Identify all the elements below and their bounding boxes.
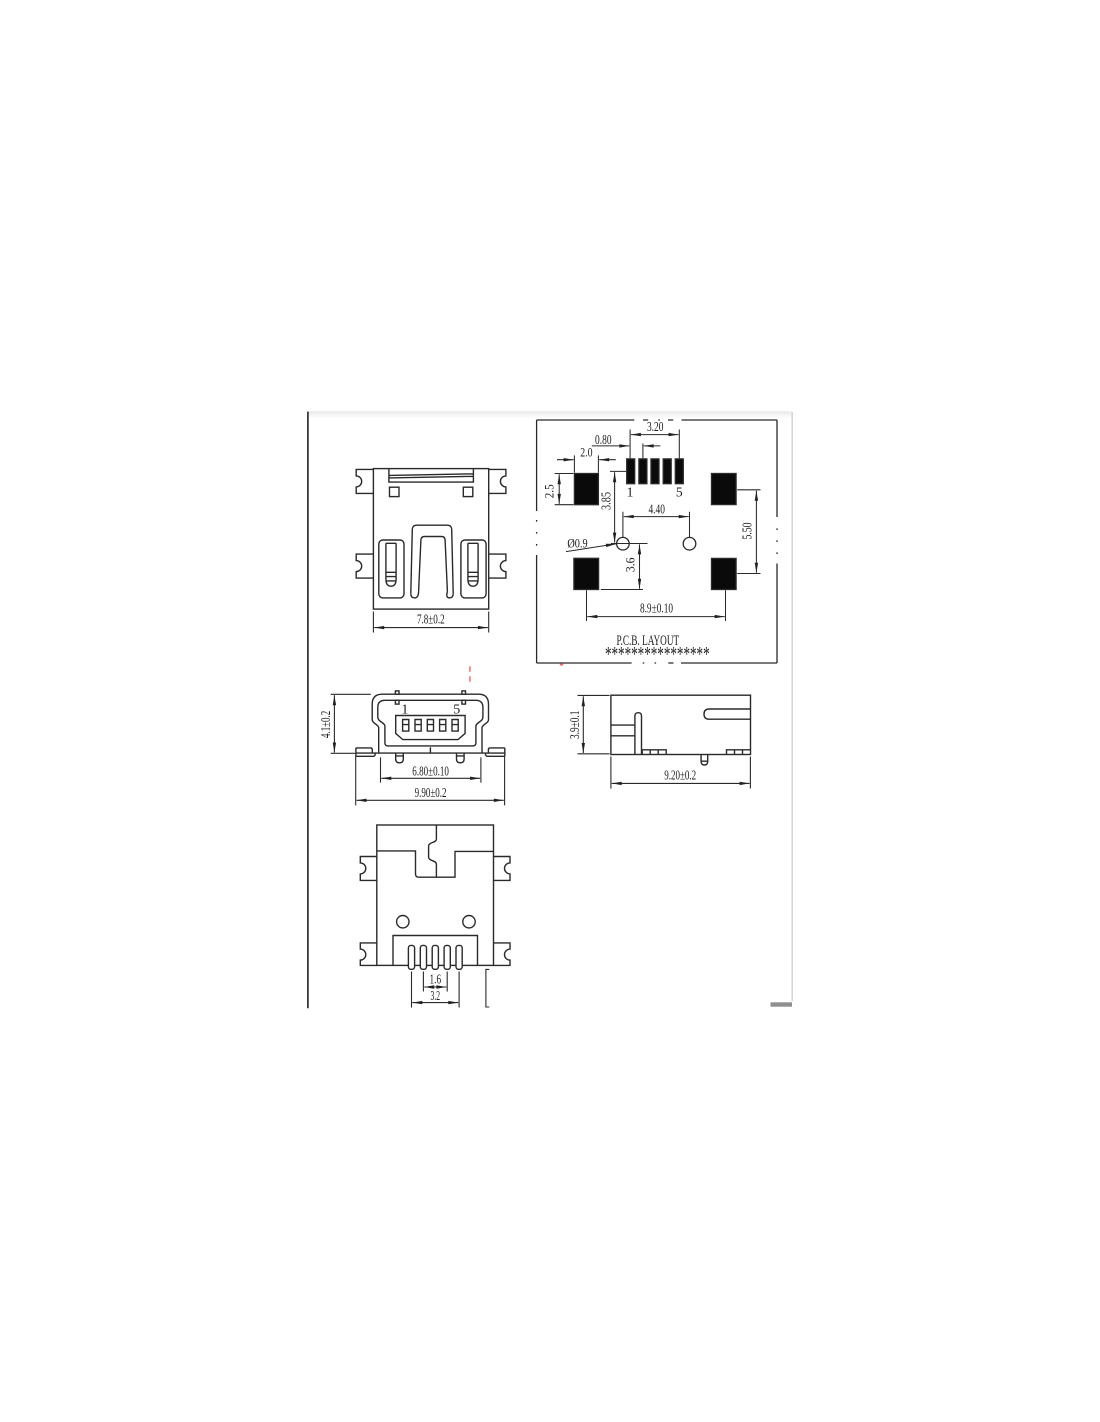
svg-text:****************: **************** [605, 642, 710, 666]
svg-text:5: 5 [676, 485, 683, 500]
svg-text:3.9±0.1: 3.9±0.1 [568, 711, 583, 740]
svg-text:7.8±0.2: 7.8±0.2 [417, 612, 445, 627]
svg-text:5.50: 5.50 [740, 522, 755, 539]
svg-text:4.40: 4.40 [648, 501, 665, 516]
svg-text:2.0: 2.0 [580, 445, 592, 460]
svg-text:9.20±0.2: 9.20±0.2 [664, 769, 696, 784]
svg-text:5: 5 [453, 702, 460, 717]
svg-text:1: 1 [401, 702, 408, 717]
svg-text:1: 1 [627, 485, 634, 500]
svg-text:1.6: 1.6 [430, 971, 442, 986]
svg-text:9.90±0.2: 9.90±0.2 [415, 786, 447, 801]
svg-text:3.6: 3.6 [622, 557, 637, 572]
svg-text:8.9±0.10: 8.9±0.10 [640, 602, 673, 617]
svg-text:Ø0.9: Ø0.9 [567, 536, 587, 551]
svg-text:2.5: 2.5 [542, 484, 557, 498]
svg-text:3.20: 3.20 [647, 419, 664, 434]
svg-text:3.85: 3.85 [598, 492, 613, 510]
svg-text:0.80: 0.80 [595, 432, 612, 447]
svg-text:3.2: 3.2 [431, 988, 441, 1003]
svg-text:6.80±0.10: 6.80±0.10 [412, 765, 449, 780]
svg-text:4.1±0.2: 4.1±0.2 [319, 711, 334, 738]
